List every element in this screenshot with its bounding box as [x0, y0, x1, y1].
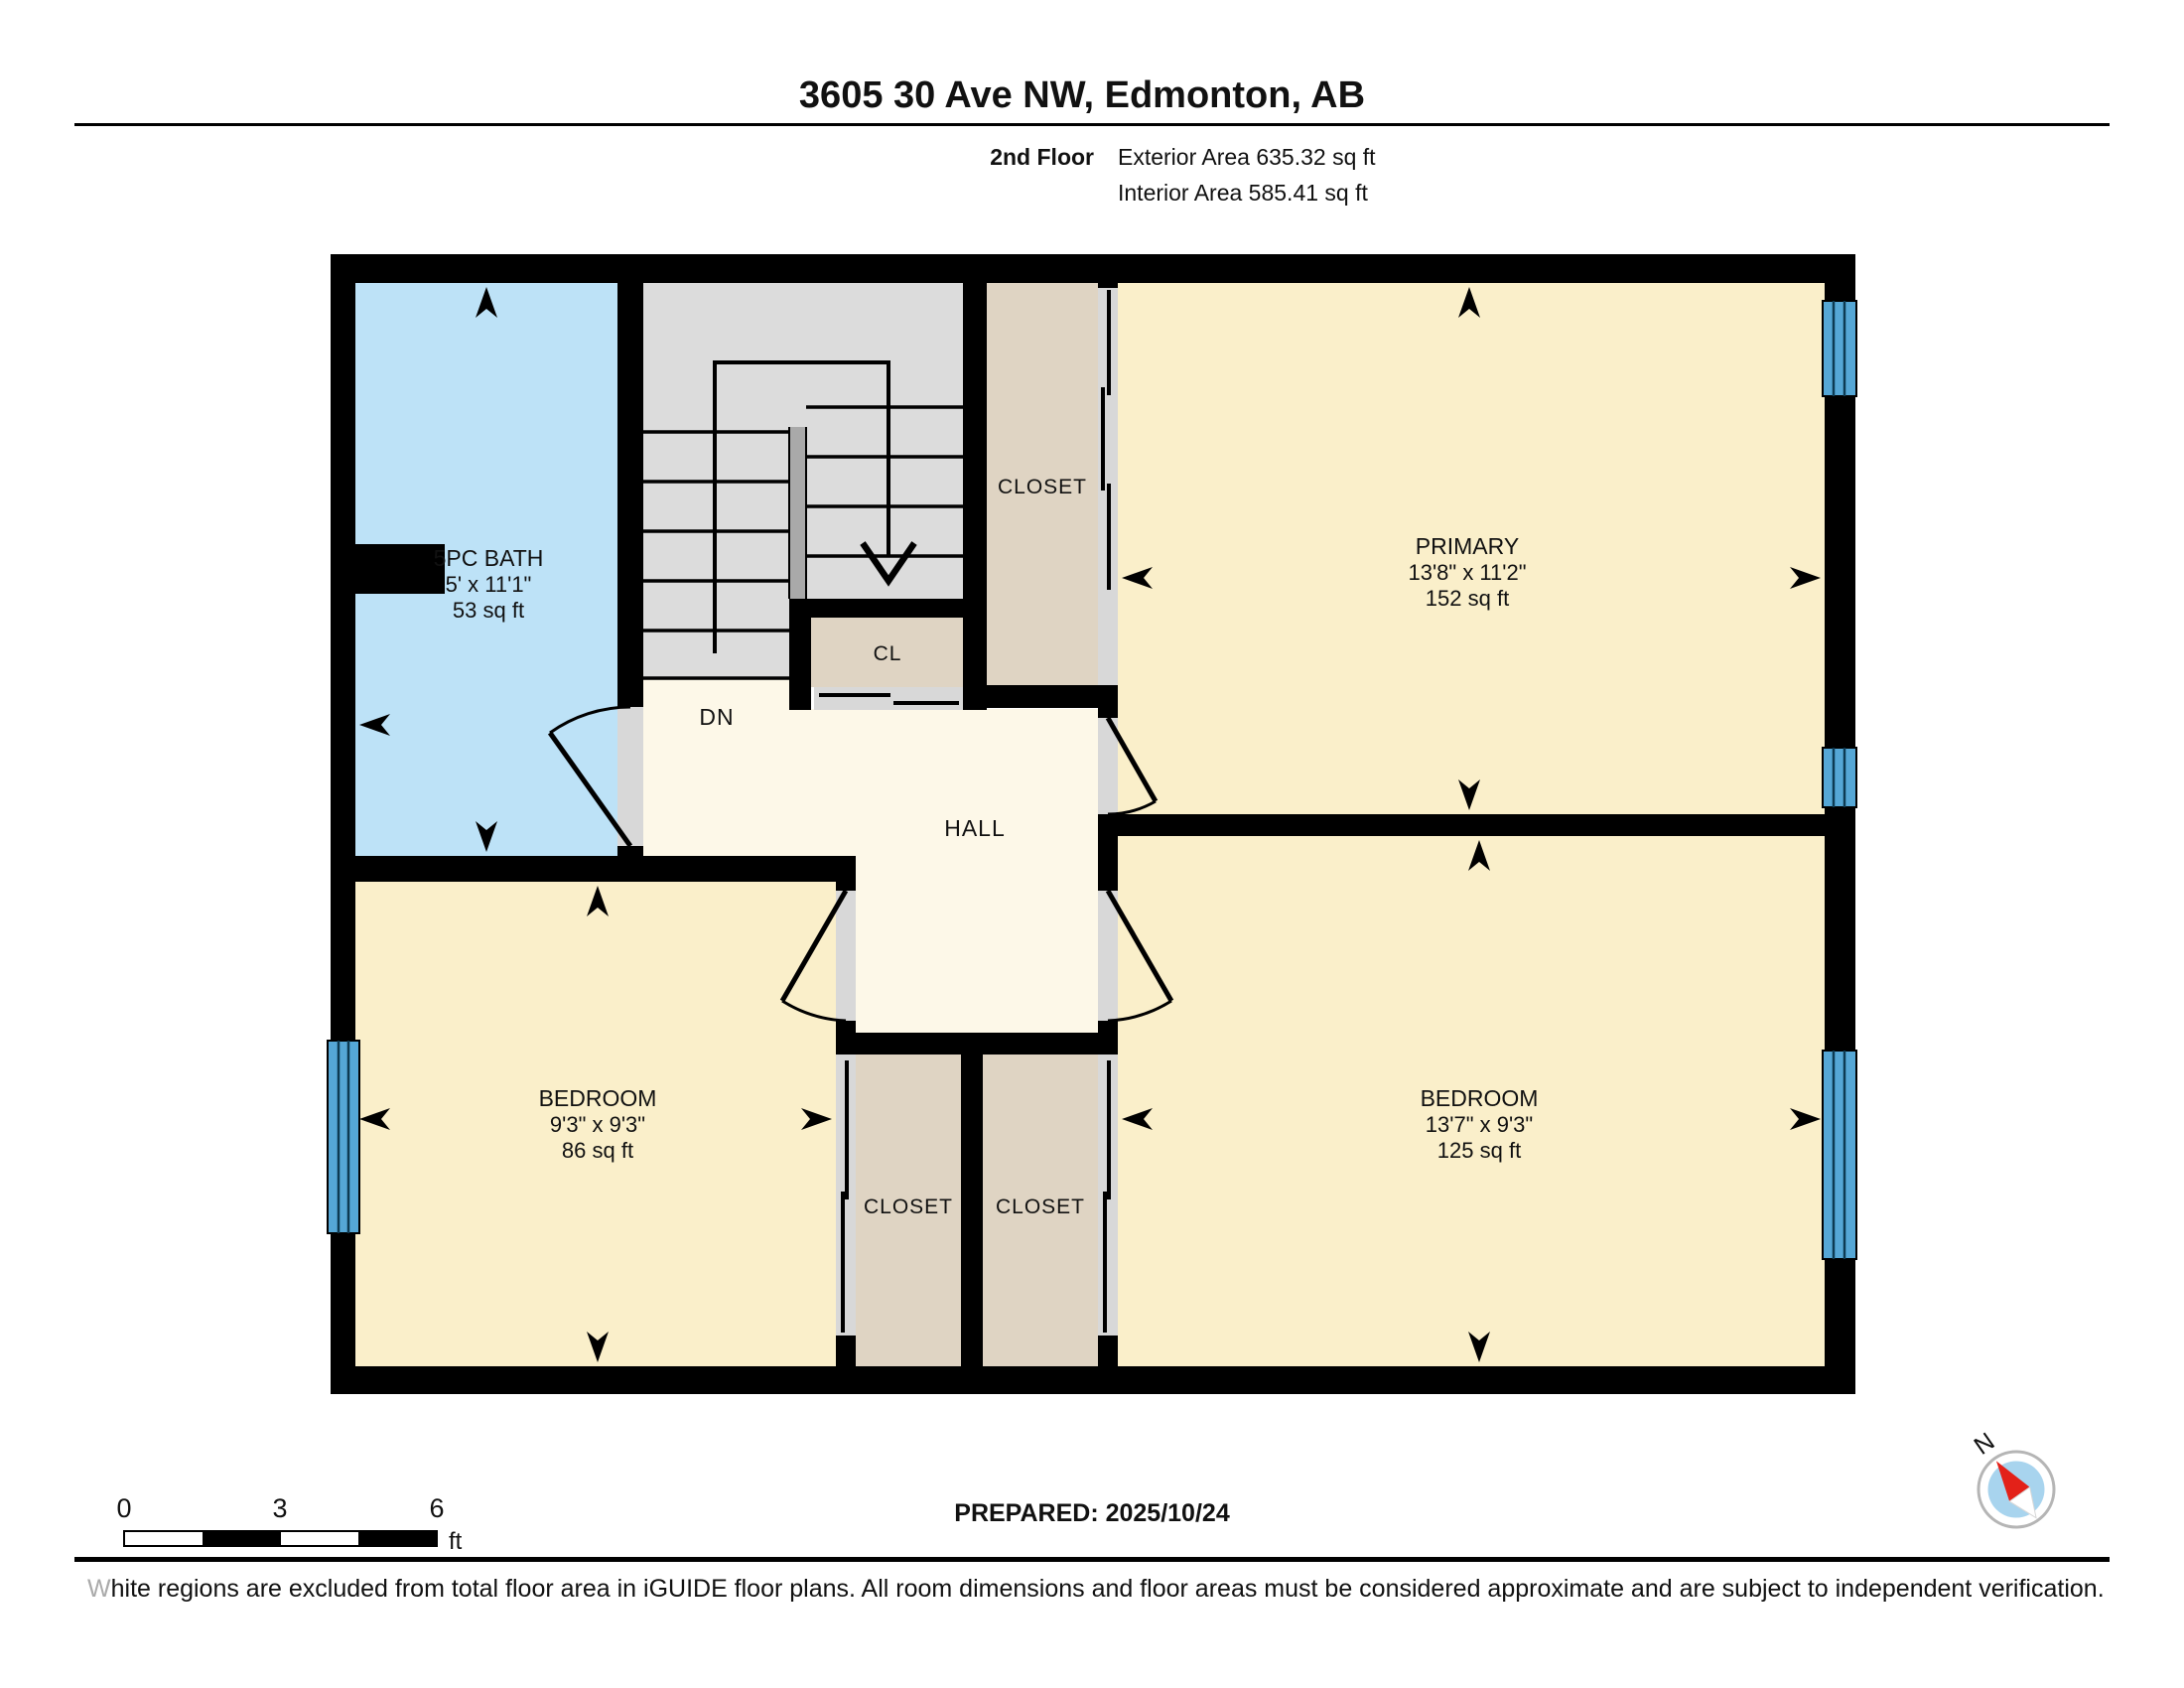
wall	[1118, 814, 1825, 836]
compass-icon: N	[1967, 1425, 2054, 1527]
scale-bar-segment	[358, 1531, 437, 1546]
stair-direction-label: DN	[699, 704, 734, 730]
wall	[963, 685, 1118, 708]
wall	[1098, 1336, 1118, 1366]
footer-divider	[74, 1557, 2110, 1562]
wall	[331, 254, 1855, 283]
room-label-bath: 5PC BATH	[434, 545, 544, 571]
wall	[355, 544, 445, 594]
room-label-bedroom-left: BEDROOM	[539, 1085, 657, 1111]
window-icon	[328, 1041, 359, 1233]
room-area-primary: 152 sq ft	[1426, 586, 1509, 611]
room-label-closet-left: CLOSET	[864, 1196, 953, 1218]
window-icon	[1823, 748, 1856, 807]
wall	[1098, 1021, 1118, 1055]
room-dims-primary: 13'8" x 11'2"	[1408, 560, 1526, 585]
footer-disclaimer-first: W	[87, 1575, 111, 1603]
floor-plan: 5PC BATH 5' x 11'1" 53 sq ft PRIMARY 13'…	[328, 254, 1856, 1394]
wall	[836, 882, 856, 891]
scale-unit-label: ft	[449, 1528, 463, 1555]
room-dims-bedroom-right: 13'7" x 9'3"	[1426, 1112, 1533, 1137]
footer-disclaimer: White regions are excluded from total fl…	[87, 1575, 2105, 1603]
floor-plan-page: 3605 30 Ave NW, Edmonton, AB 2nd Floor E…	[0, 0, 2184, 1688]
window-icon	[1823, 1051, 1856, 1259]
room-label-primary: PRIMARY	[1416, 533, 1519, 559]
wall	[961, 1055, 983, 1366]
wall	[789, 618, 811, 710]
room-area-bath: 53 sq ft	[453, 598, 524, 623]
window-icon	[1823, 301, 1856, 396]
room-label-closet-small: CL	[874, 642, 902, 665]
room-label-closet-top: CLOSET	[998, 476, 1087, 498]
wall	[331, 1366, 1855, 1394]
interior-area-label: Interior Area 585.41 sq ft	[1118, 180, 1368, 206]
room-label-hall: HALL	[944, 815, 1006, 841]
north-label: N	[1969, 1427, 1999, 1460]
room-label-bedroom-right: BEDROOM	[1421, 1085, 1539, 1111]
wall	[836, 1336, 856, 1366]
room-dims-bath: 5' x 11'1"	[446, 572, 532, 597]
stair-rail	[789, 427, 806, 599]
wall	[1098, 685, 1118, 718]
footer-disclaimer-rest: hite regions are excluded from total flo…	[111, 1575, 2105, 1603]
wall	[963, 283, 987, 710]
scale-bar: 0 3 6 ft	[116, 1493, 462, 1555]
door-frame	[836, 891, 856, 1021]
header-divider	[74, 123, 2110, 126]
page-title: 3605 30 Ave NW, Edmonton, AB	[799, 74, 1365, 116]
door-frame	[1098, 891, 1118, 1021]
wall	[789, 599, 963, 618]
wall	[617, 283, 643, 707]
floor-label: 2nd Floor	[990, 144, 1094, 170]
scale-tick-6: 6	[429, 1493, 444, 1523]
scale-tick-0: 0	[116, 1493, 131, 1523]
scale-bar-segment	[203, 1531, 281, 1546]
wall	[331, 856, 856, 882]
room-area-bedroom-left: 86 sq ft	[562, 1138, 633, 1163]
wall	[1098, 814, 1118, 891]
door-frame	[617, 707, 643, 846]
sliding-door-icon	[814, 687, 963, 710]
wall	[836, 1021, 856, 1055]
room-area-bedroom-right: 125 sq ft	[1437, 1138, 1521, 1163]
scale-tick-3: 3	[272, 1493, 287, 1523]
wall	[856, 1033, 1098, 1055]
exterior-area-label: Exterior Area 635.32 sq ft	[1118, 144, 1376, 170]
room-label-closet-right: CLOSET	[996, 1196, 1085, 1218]
room-dims-bedroom-left: 9'3" x 9'3"	[550, 1112, 645, 1137]
prepared-date: PREPARED: 2025/10/24	[954, 1499, 1230, 1527]
